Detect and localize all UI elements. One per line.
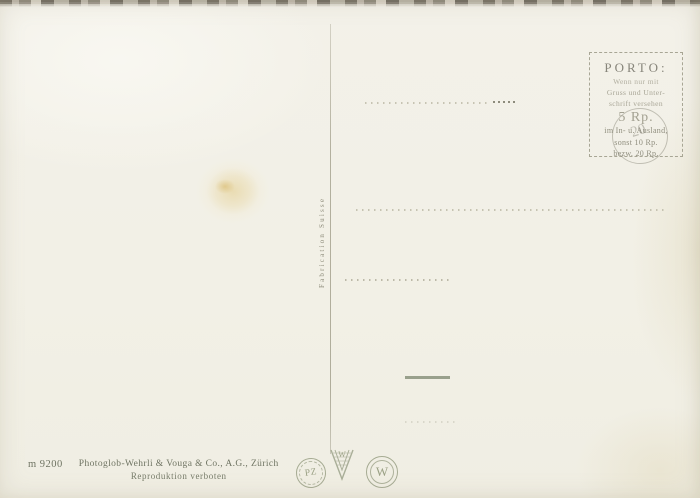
address-rule-5 (405, 421, 458, 423)
pz-badge-letters: PZ (304, 467, 317, 479)
address-rule-3 (345, 279, 451, 281)
address-rule-2 (356, 209, 664, 211)
divider-line (330, 24, 331, 454)
card-number: m 9200 (28, 459, 63, 481)
fabrication-suisse-label: Fabrication Suisse (318, 186, 326, 288)
wehrli-v-badge-letter: W (338, 450, 346, 459)
torn-paper-edge (0, 0, 700, 7)
publisher-imprint: m 9200 Photoglob-Wehrli & Vouga & Co., A… (28, 459, 279, 481)
address-rule-4-solid (405, 376, 450, 379)
wehrli-v-badge: W (329, 448, 355, 482)
porto-condition-line: Gruss und Unter- (590, 87, 682, 98)
paper-stain-core (215, 179, 235, 194)
postmark-circle: 20 (612, 108, 668, 164)
address-rule-1 (365, 102, 491, 104)
w-badge-letter: W (376, 464, 388, 480)
address-rule-1-dark-dashes (493, 101, 516, 103)
pz-badge: PZ (294, 456, 328, 490)
postmark-numeral: 20 (629, 121, 649, 142)
postcard-back: PORTO: Wenn nur mit Gruss und Unter- sch… (0, 0, 700, 498)
porto-condition-line: Wenn nur mit (590, 76, 682, 87)
publisher-name: Photoglob-Wehrli & Vouga & Co., A.G., Zü… (79, 459, 279, 469)
w-badge: W (366, 456, 398, 488)
copyright-notice: Reproduktion verboten (79, 471, 279, 481)
porto-title: PORTO: (590, 60, 682, 76)
